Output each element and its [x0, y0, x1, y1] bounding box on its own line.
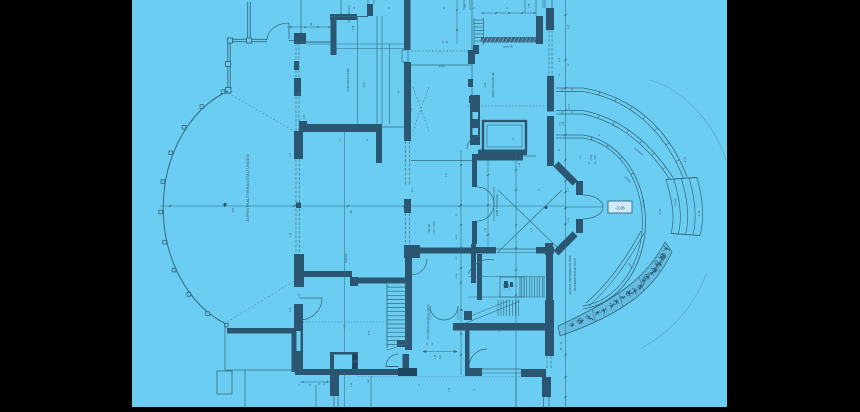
svg-text:PETER: PETER [427, 224, 431, 233]
svg-text:am/dr 95: am/dr 95 [503, 46, 513, 49]
svg-text:4.11: 4.11 [446, 172, 448, 177]
svg-text:1.0: 1.0 [580, 155, 582, 159]
svg-text:35: 35 [319, 382, 321, 385]
svg-text:40: 40 [354, 6, 356, 9]
svg-text:1.BB 1.BBB: 1.BB 1.BBB [433, 221, 436, 235]
svg-text:36: 36 [561, 347, 563, 350]
svg-text:VOM STÜCKISCHE: VOM STÜCKISCHE [491, 72, 495, 97]
svg-text:4.21: 4.21 [440, 354, 442, 359]
svg-text:1.35: 1.35 [456, 234, 458, 239]
svg-text:85: 85 [559, 148, 561, 151]
svg-text:1.18: 1.18 [299, 293, 301, 298]
svg-text:(05.18): (05.18) [675, 198, 677, 205]
svg-text:4.11: 4.11 [412, 187, 414, 192]
svg-text:1.17: 1.17 [568, 187, 570, 192]
svg-text:(05.18): (05.18) [643, 200, 645, 207]
svg-text:1.10: 1.10 [351, 382, 353, 387]
svg-text:85: 85 [310, 22, 313, 25]
svg-text:1.30: 1.30 [304, 114, 306, 119]
svg-text:4.99: 4.99 [362, 82, 366, 88]
svg-text:-0.28: -0.28 [594, 155, 597, 161]
svg-text:1.10: 1.10 [568, 24, 570, 29]
svg-text:1.35: 1.35 [529, 3, 531, 8]
svg-text:1.35: 1.35 [435, 354, 437, 359]
svg-text:1.35: 1.35 [563, 121, 565, 126]
svg-text:1.35: 1.35 [559, 57, 561, 62]
svg-text:1.35: 1.35 [411, 107, 413, 112]
svg-text:24: 24 [367, 138, 369, 141]
svg-text:55: 55 [474, 6, 476, 9]
svg-text:4.55: 4.55 [484, 82, 487, 87]
svg-text:2.26: 2.26 [485, 227, 487, 232]
svg-text:45: 45 [419, 383, 421, 386]
svg-text:2-SCHWINGUNGSTÜRE SIEHE: 2-SCHWINGUNGSTÜRE SIEHE [427, 304, 430, 339]
svg-text:-0.77: -0.77 [567, 103, 571, 109]
svg-text:-1.10: -1.10 [683, 156, 687, 163]
svg-text:49: 49 [398, 90, 400, 93]
svg-text:15: 15 [324, 382, 326, 385]
svg-text:VOM STOCKERE: VOM STOCKERE [495, 194, 499, 217]
svg-text:4.16: 4.16 [369, 330, 371, 335]
svg-text:-3.06: -3.06 [615, 206, 625, 211]
svg-text:Terrasse: Terrasse [633, 146, 644, 156]
svg-text:-0.41: -0.41 [658, 208, 662, 215]
svg-text:TREPPENDETAILPLAN B14/18: TREPPENDETAILPLAN B14/18 [574, 258, 577, 292]
svg-text:35: 35 [389, 6, 391, 9]
svg-text:30: 30 [474, 388, 476, 391]
svg-text:4M: 4M [349, 210, 353, 214]
svg-text:80: 80 [310, 383, 312, 386]
svg-text:VOM FROCKERE: VOM FROCKERE [346, 68, 350, 92]
svg-text:95: 95 [443, 40, 445, 43]
svg-text:2.61: 2.61 [231, 207, 235, 213]
svg-text:2.26: 2.26 [456, 273, 458, 278]
svg-text:1.10: 1.10 [531, 227, 533, 232]
svg-text:4M: 4M [368, 379, 370, 382]
svg-text:2.26: 2.26 [353, 25, 355, 30]
svg-text:1.5: 1.5 [513, 137, 515, 141]
svg-text:30: 30 [340, 138, 342, 141]
svg-text:06: 06 [427, 342, 429, 345]
svg-text:1.30: 1.30 [290, 152, 292, 157]
svg-text:3.0: 3.0 [456, 213, 458, 217]
svg-text:+0.00: +0.00 [590, 154, 593, 161]
svg-text:niveau: niveau [623, 175, 632, 184]
svg-text:85: 85 [447, 40, 449, 43]
svg-text:15: 15 [299, 383, 301, 386]
svg-text:95: 95 [507, 6, 509, 9]
svg-text:p.241: p.241 [439, 66, 445, 68]
svg-text:50: 50 [561, 341, 563, 344]
svg-text:120: 120 [465, 3, 467, 8]
svg-text:AUFENTHALT/VERANSTALTUNGEN: AUFENTHALT/VERANSTALTUNGEN [245, 154, 250, 221]
svg-text:1.35: 1.35 [449, 387, 451, 392]
svg-text:90: 90 [462, 308, 464, 311]
svg-text:-1.13: -1.13 [697, 210, 701, 217]
svg-text:9.5: 9.5 [456, 256, 458, 260]
svg-text:35: 35 [568, 63, 570, 66]
svg-text:1.35: 1.35 [568, 217, 570, 222]
svg-text:35: 35 [539, 188, 541, 191]
svg-text:1.0: 1.0 [560, 122, 562, 126]
svg-text:VOM FROCKE: VOM FROCKE [347, 5, 351, 23]
svg-text:GESAMTE TREPPENANLAGE SIEHE: GESAMTE TREPPENANLAGE SIEHE [569, 255, 572, 295]
svg-text:05: 05 [432, 342, 434, 345]
svg-text:ausgu: ausgu [627, 262, 634, 270]
svg-text:1.18: 1.18 [519, 162, 521, 167]
svg-text:2.04: 2.04 [290, 232, 292, 237]
svg-text:50: 50 [559, 73, 561, 76]
svg-text:90: 90 [444, 6, 446, 9]
svg-text:25: 25 [599, 133, 601, 136]
svg-text:1.35: 1.35 [290, 307, 292, 312]
